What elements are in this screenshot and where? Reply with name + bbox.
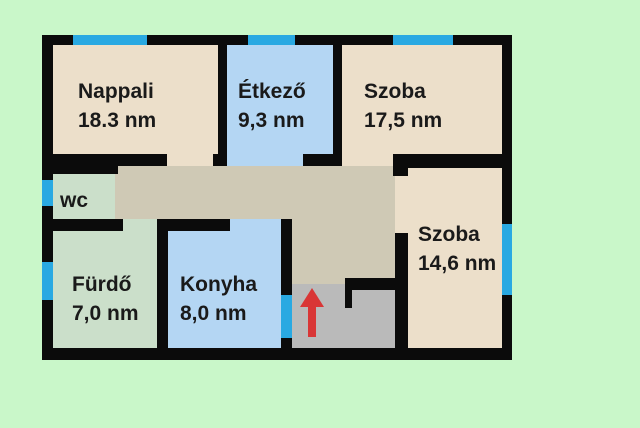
entrance-arrow-shaft: [308, 304, 316, 337]
room-label-etkezo: Étkező 9,3 nm: [238, 77, 306, 135]
entrance-arrow-head: [300, 288, 324, 307]
window-marker-szoba-1: [393, 35, 453, 45]
wall-entrance-top: [345, 278, 397, 290]
room-name: Szoba: [418, 220, 496, 249]
wall-wc-bottom: [42, 219, 123, 231]
outer-wall-bottom: [42, 348, 512, 360]
wall-nub-nappali-door: [213, 154, 227, 166]
floorplan-canvas: Nappali 18.3 nm Étkező 9,3 nm Szoba 17,5…: [0, 0, 640, 428]
room-area: 7,0 nm: [72, 299, 139, 328]
hallway-floor-column: [292, 219, 395, 284]
window-marker-etkezo: [248, 35, 295, 45]
wall-wc-top: [42, 164, 118, 174]
room-area: 9,3 nm: [238, 106, 306, 135]
window-marker-nappali: [73, 35, 147, 45]
room-label-wc: wc: [60, 186, 88, 215]
room-label-nappali: Nappali 18.3 nm: [78, 77, 156, 135]
room-area: 17,5 nm: [364, 106, 442, 135]
room-label-szoba-1: Szoba 17,5 nm: [364, 77, 442, 135]
wall-nub-etkezo-door: [303, 154, 342, 166]
wall-konyha-right-lower: [281, 338, 292, 360]
room-name: Konyha: [180, 270, 257, 299]
room-label-furdo: Fürdő 7,0 nm: [72, 270, 139, 328]
room-area: 18.3 nm: [78, 106, 156, 135]
wall-szoba1-bottom: [395, 154, 502, 168]
room-name: Szoba: [364, 77, 442, 106]
room-label-szoba-2: Szoba 14,6 nm: [418, 220, 496, 278]
room-name: Étkező: [238, 77, 306, 106]
wall-nub-szoba2-door-top: [393, 154, 408, 176]
outer-wall-right: [502, 35, 512, 360]
room-name: Fürdő: [72, 270, 139, 299]
window-marker-szoba-2: [502, 224, 512, 295]
wall-nub-entrance: [345, 278, 352, 308]
wall-konyha-right-upper: [281, 219, 292, 295]
door-marker-konyha: [281, 295, 292, 338]
room-label-konyha: Konyha 8,0 nm: [180, 270, 257, 328]
window-marker-wc: [42, 180, 53, 206]
room-area: 8,0 nm: [180, 299, 257, 328]
wall-furdo-konyha: [157, 219, 168, 348]
wall-nappali-etkezo: [218, 45, 227, 166]
room-name: Nappali: [78, 77, 156, 106]
room-name: wc: [60, 186, 88, 215]
wall-szoba2-left: [395, 233, 408, 360]
wall-etkezo-szoba: [333, 45, 342, 166]
room-area: 14,6 nm: [418, 249, 496, 278]
hallway-floor-upper: [115, 166, 395, 219]
window-marker-furdo: [42, 262, 53, 300]
